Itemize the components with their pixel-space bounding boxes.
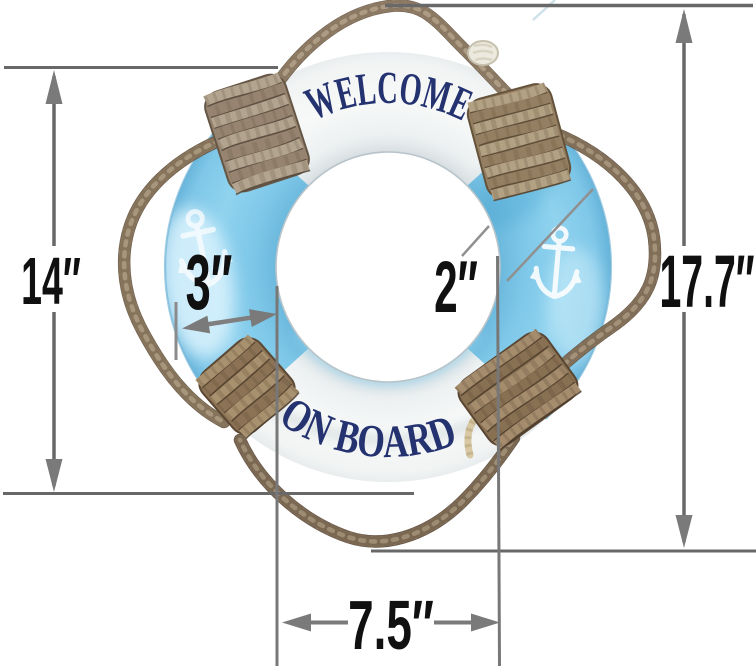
svg-text:2″: 2″: [434, 246, 478, 328]
svg-text:3″: 3″: [186, 238, 233, 326]
svg-text:17.7″: 17.7″: [659, 240, 754, 324]
svg-text:14″: 14″: [21, 244, 81, 319]
svg-text:7.5″: 7.5″: [348, 585, 434, 664]
